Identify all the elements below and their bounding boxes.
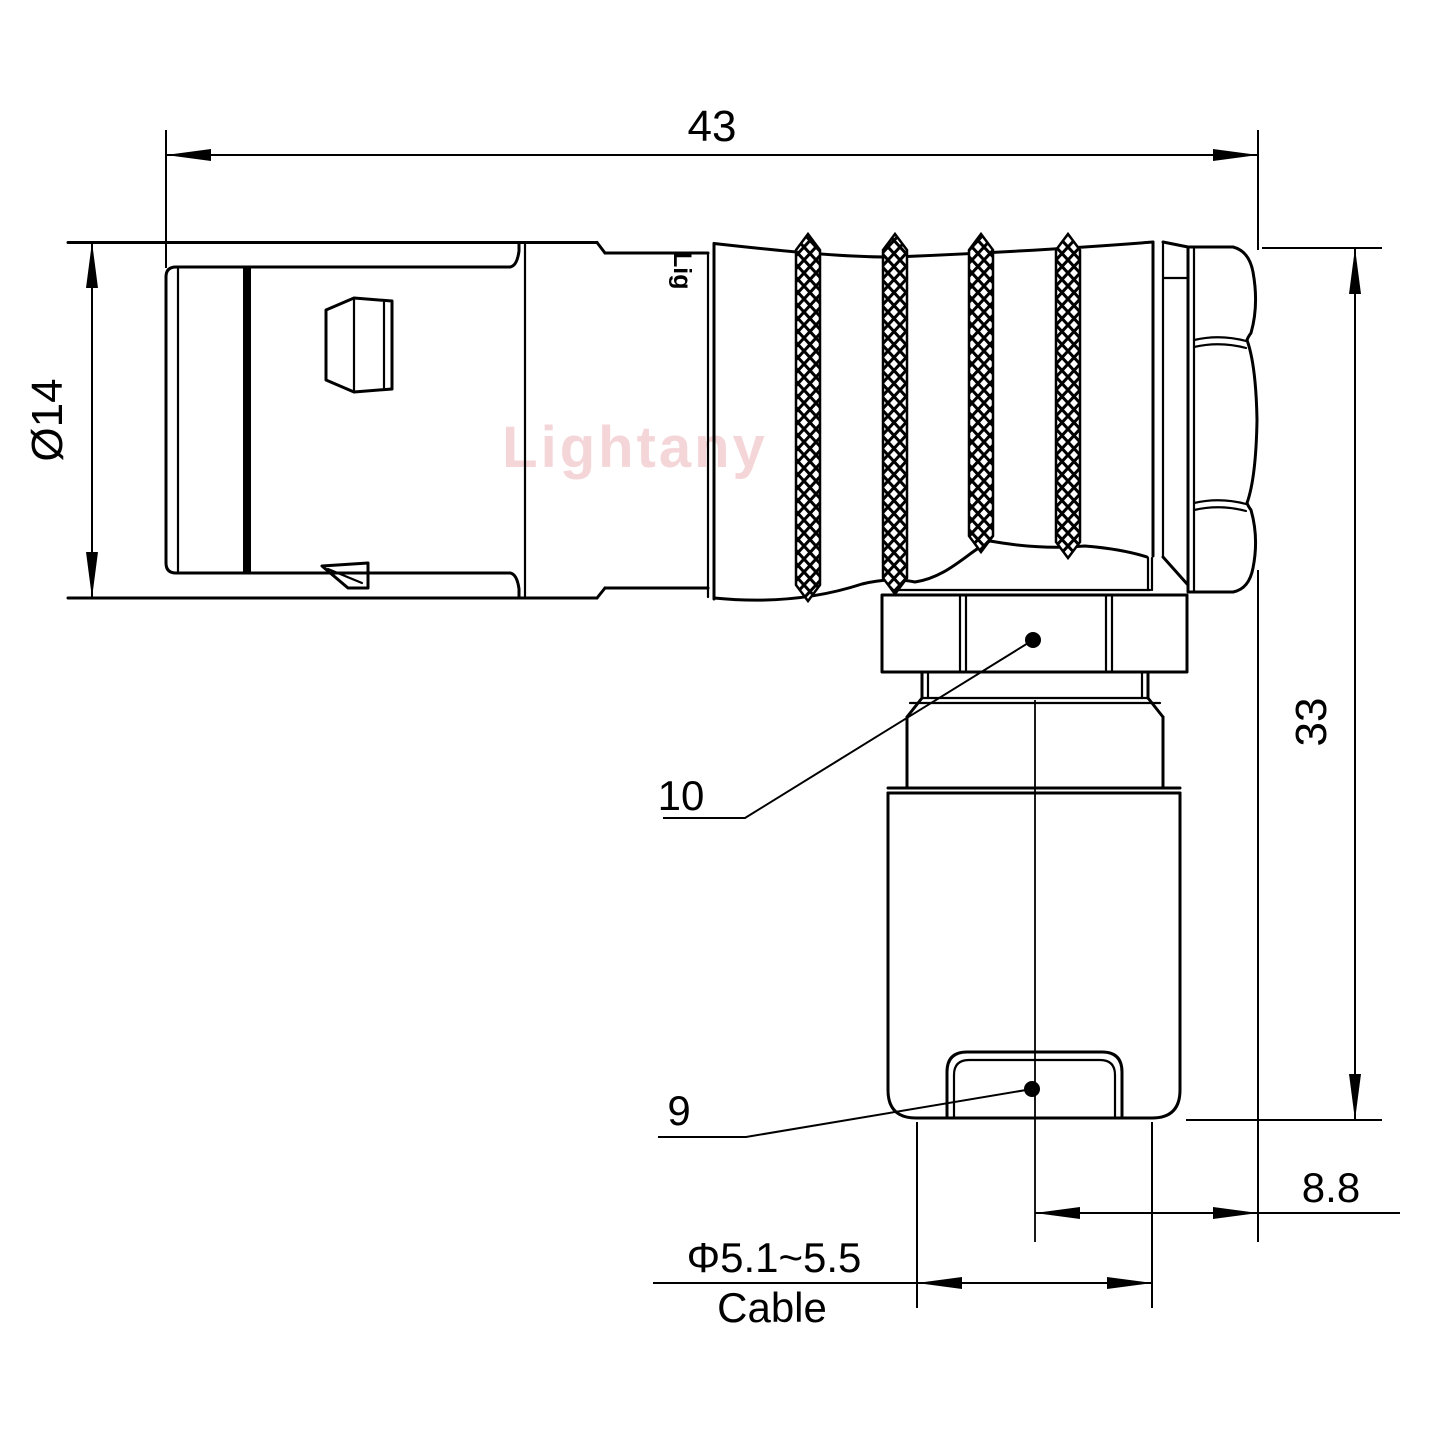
dim-text-right-offset: 8.8 [1302,1164,1360,1211]
leader-cable-boot: 9 [658,1081,1040,1137]
connector-technical-drawing: Lightany Lig [0,0,1440,1440]
coupling-nut [882,590,1187,672]
leader-dot-9 [1024,1081,1040,1097]
grip-knurled-shell [708,242,1163,600]
leader-coupling-nut: 10 [658,632,1041,819]
engineering-drawing-page: Lightany Lig [0,0,1440,1440]
front-shell [68,243,605,599]
lower-body [888,788,1180,1118]
part-label-9: 9 [667,1087,690,1134]
body-logo-text: Lig [668,252,696,290]
dim-text-cable-diameter: Φ5.1~5.5 [687,1234,862,1281]
backshell-hex-nut [1163,242,1257,592]
knurl-band-2 [883,234,907,594]
knurl-band-3 [969,234,993,552]
key-tab [326,298,392,392]
knurl-band-4 [1056,234,1080,558]
mating-sleeve [166,243,519,598]
watermark-text: Lightany [502,415,768,480]
elbow-hump [714,541,1147,600]
dim-front-diameter: Ø14 [23,242,98,598]
part-label-10: 10 [658,772,705,819]
dim-text-overall-height: 33 [1287,698,1336,747]
dim-text-front-diameter: Ø14 [23,378,72,461]
dim-text-overall-length: 43 [688,102,737,151]
dim-text-cable-word: Cable [717,1284,827,1331]
leader-dot-10 [1025,632,1041,648]
latch-notch [322,563,368,588]
dim-cable-diameter: Φ5.1~5.5 Cable [653,1122,1152,1331]
sleeve-index-line [243,267,251,573]
dim-overall-height: 33 [1186,248,1382,1120]
knurl-band-1 [796,234,820,601]
